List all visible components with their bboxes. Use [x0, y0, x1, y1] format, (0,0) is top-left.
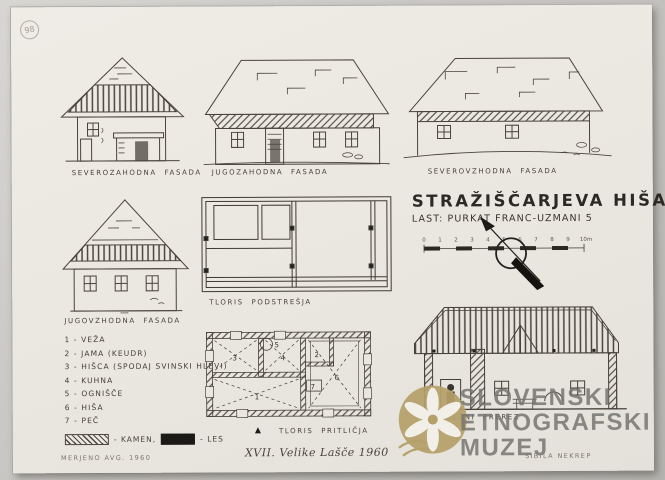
measured-note: MERJENO AVG. 1960	[61, 454, 151, 462]
room-number-hisca: 3	[233, 354, 238, 362]
room-number-ognjisce: 5	[274, 341, 279, 349]
facade-se-drawing	[58, 197, 196, 316]
museum-name-watermark: SLOVENSKI ETNOGRAFSKI MUZEJ	[460, 385, 651, 461]
scale-tick: 2	[454, 237, 458, 243]
facade-nw-label: SEVEROZAHODNA FASADA	[72, 169, 192, 178]
ground-plan-figure: 1 2 3 4 5 6 7 ▲ TLORIS PRITLIČJA	[202, 328, 380, 436]
scale-tick: 9	[566, 237, 570, 243]
scale-tick: 10m	[580, 237, 592, 243]
ground-plan-label: TLORIS PRITLIČJA	[279, 427, 369, 435]
facade-sw-figure: JUGOZAHODNA FASADA	[195, 54, 400, 177]
north-marker: ▲	[255, 426, 261, 434]
facade-nw-figure: SEVEROZAHODNA FASADA	[57, 55, 192, 178]
room-number-hisa: 6	[335, 374, 340, 382]
sheet-title: STRAŽIŠČARJEVA HIŠA	[412, 191, 642, 211]
room-number-veza: 1	[255, 393, 260, 401]
north-arrow-compass	[464, 215, 559, 300]
scan-background: 98	[0, 0, 665, 480]
watermark-line-2: ETNOGRAFSKI	[460, 410, 651, 436]
room-number-jama: 2	[314, 351, 319, 359]
inventory-number-stamp: 98	[18, 19, 41, 42]
facade-ne-label: SEVEROVZHODNA FASADA	[428, 167, 618, 176]
ground-plan-drawing: 1 2 3 4 5 6 7	[202, 328, 374, 423]
facade-se-figure: JUGOVZHODNA FASADA	[58, 197, 196, 326]
room-number-kuhna: 4	[281, 354, 286, 362]
scale-tick: 1	[438, 238, 442, 244]
stone-hatch-swatch	[65, 433, 109, 444]
wood-solid-swatch	[161, 433, 195, 444]
watermark-line-1: SLOVENSKI	[460, 385, 651, 411]
drawn-by-note: SIBILA NEKREP	[525, 452, 592, 460]
facade-sw-drawing	[195, 54, 397, 167]
facade-se-label: JUGOVZHODNA FASADA	[64, 317, 195, 326]
facade-nw-drawing	[57, 55, 187, 168]
inventory-number: 98	[24, 24, 36, 35]
room-number-pec: 7	[311, 383, 316, 391]
series-handwritten-note: XVII. Velike Lašče 1960	[245, 446, 389, 460]
attic-plan-drawing	[197, 192, 397, 297]
facade-ne-drawing	[401, 53, 615, 166]
attic-plan-label: TLORIS PODSTREŠJA	[209, 298, 399, 307]
facade-ne-figure: SEVEROVZHODNA FASADA	[401, 53, 618, 176]
facade-sw-label: JUGOZAHODNA FASADA	[212, 168, 400, 177]
attic-plan-figure: TLORIS PODSTREŠJA	[197, 192, 399, 307]
drawing-sheet: 98	[11, 5, 654, 474]
scale-tick: 0	[422, 238, 426, 244]
stone-label: - KAMEN,	[114, 434, 156, 443]
